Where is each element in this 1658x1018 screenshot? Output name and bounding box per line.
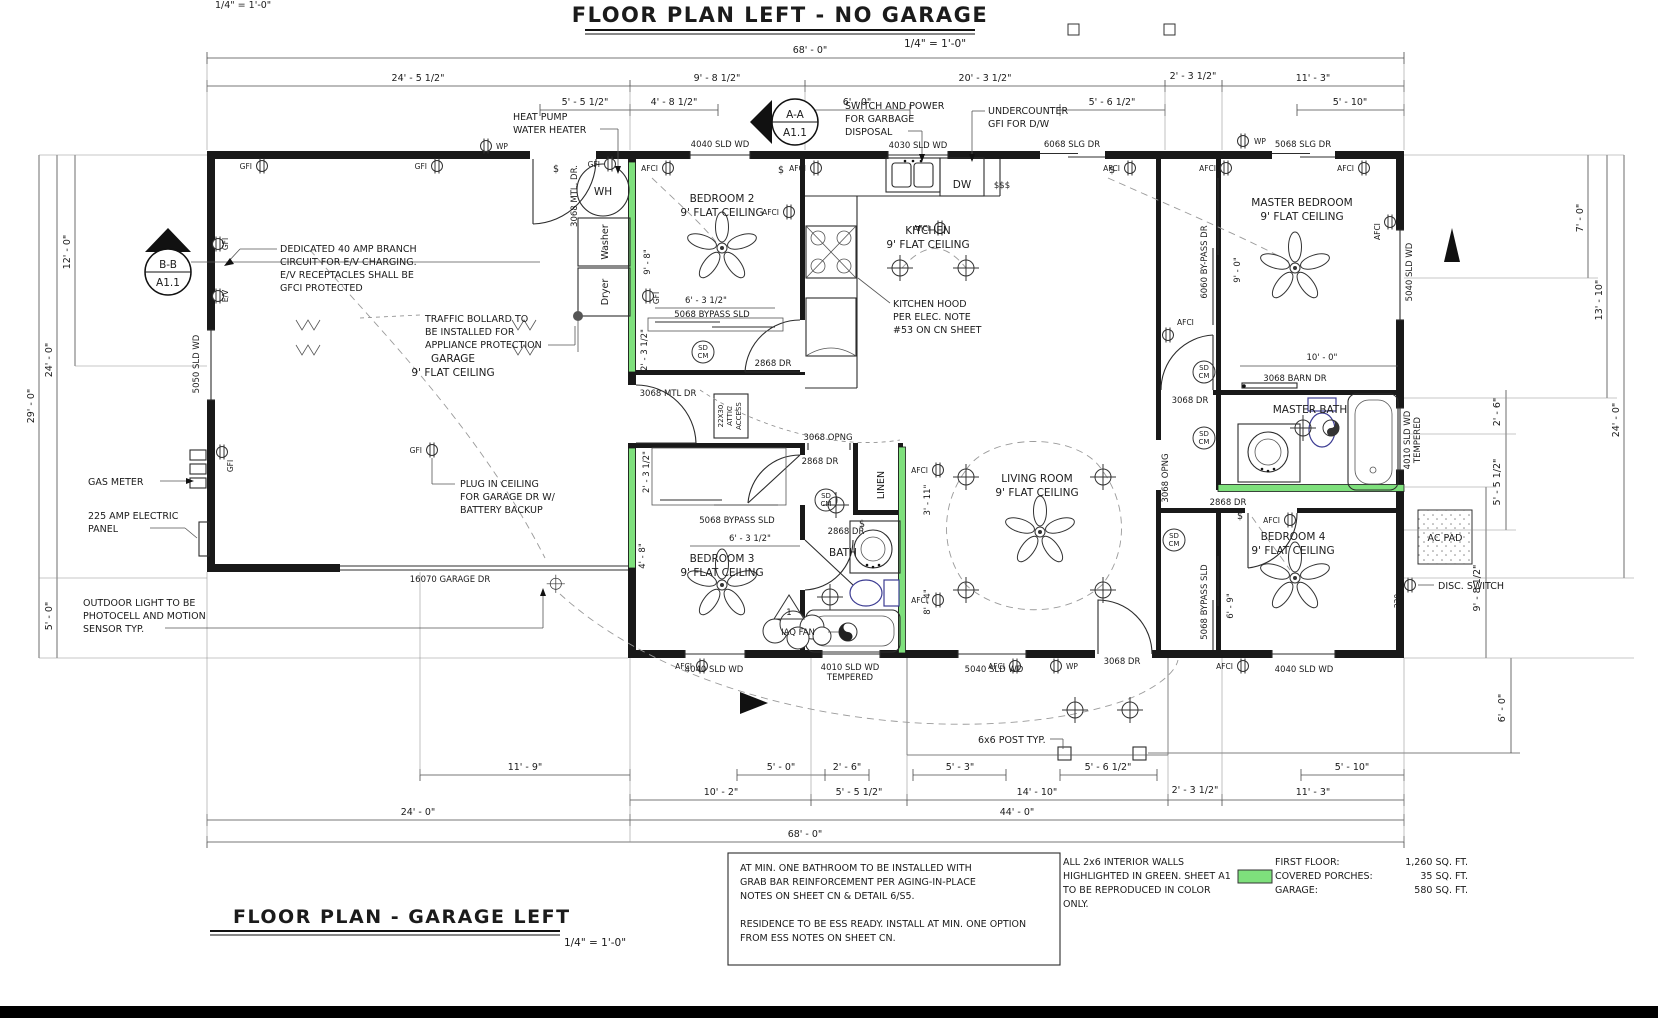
svg-text:9' FLAT CEILING: 9' FLAT CEILING bbox=[1251, 545, 1334, 557]
svg-text:DISPOSAL: DISPOSAL bbox=[845, 127, 893, 138]
svg-text:ATTIC: ATTIC bbox=[726, 406, 734, 426]
svg-text:9' - 0": 9' - 0" bbox=[1233, 257, 1243, 283]
svg-text:AFCI: AFCI bbox=[1263, 516, 1280, 525]
svg-text:#53 ON CN SHEET: #53 ON CN SHEET bbox=[893, 325, 982, 336]
svg-text:GFI: GFI bbox=[226, 460, 235, 472]
svg-text:$: $ bbox=[778, 165, 784, 176]
svg-text:5' - 0": 5' - 0" bbox=[767, 762, 796, 773]
svg-text:3068 OPNG: 3068 OPNG bbox=[803, 433, 852, 443]
svg-text:WH: WH bbox=[594, 186, 612, 198]
svg-text:10' - 0": 10' - 0" bbox=[1307, 353, 1338, 363]
svg-text:$: $ bbox=[1237, 511, 1243, 522]
svg-text:IAQ FAN: IAQ FAN bbox=[781, 628, 815, 638]
note-garbage-disposal: SWITCH AND POWER bbox=[845, 101, 945, 112]
svg-text:A1.1: A1.1 bbox=[783, 127, 807, 139]
svg-text:9' FLAT CEILING: 9' FLAT CEILING bbox=[1260, 211, 1343, 223]
svg-text:E/V RECEPTACLES SHALL BE: E/V RECEPTACLES SHALL BE bbox=[280, 270, 414, 281]
note-disc-switch: DISC. SWITCH bbox=[1438, 581, 1504, 592]
svg-text:29' - 0": 29' - 0" bbox=[26, 389, 37, 424]
svg-text:9' FLAT CEILING: 9' FLAT CEILING bbox=[680, 567, 763, 579]
top-title: FLOOR PLAN LEFT - NO GARAGE bbox=[572, 3, 989, 27]
svg-text:AFCI: AFCI bbox=[1337, 164, 1354, 173]
room-bedroom3: BEDROOM 3 bbox=[690, 553, 755, 565]
svg-text:5068 BYPASS SLD: 5068 BYPASS SLD bbox=[1200, 564, 1210, 640]
svg-text:TO BE REPRODUCED IN COLOR: TO BE REPRODUCED IN COLOR bbox=[1062, 885, 1211, 896]
room-master-bath: MASTER BATH bbox=[1273, 404, 1347, 416]
bottom-title: FLOOR PLAN - GARAGE LEFT bbox=[233, 906, 571, 928]
svg-text:RESIDENCE TO BE ESS READY. INS: RESIDENCE TO BE ESS READY. INSTALL AT MI… bbox=[740, 919, 1026, 930]
area-garage-label: GARAGE: bbox=[1275, 885, 1318, 896]
room-master-bedroom: MASTER BEDROOM bbox=[1251, 197, 1352, 209]
svg-text:24' - 0": 24' - 0" bbox=[401, 807, 436, 818]
svg-text:APPLIANCE PROTECTION: APPLIANCE PROTECTION bbox=[425, 340, 542, 351]
area-porches-label: COVERED PORCHES: bbox=[1275, 871, 1373, 882]
svg-text:5' - 3": 5' - 3" bbox=[946, 762, 975, 773]
svg-text:6' - 0": 6' - 0" bbox=[1497, 694, 1508, 723]
svg-text:1: 1 bbox=[786, 608, 791, 618]
svg-text:HIGHLIGHTED IN GREEN. SHEET A1: HIGHLIGHTED IN GREEN. SHEET A1 bbox=[1063, 871, 1231, 882]
svg-text:CM: CM bbox=[1199, 438, 1210, 446]
svg-text:11' - 3": 11' - 3" bbox=[1296, 787, 1331, 798]
svg-text:3068 MTL DR: 3068 MTL DR bbox=[640, 389, 697, 399]
svg-text:9' FLAT CEILING: 9' FLAT CEILING bbox=[886, 239, 969, 251]
svg-text:11' - 3": 11' - 3" bbox=[1296, 73, 1331, 84]
svg-text:CM: CM bbox=[1199, 372, 1210, 380]
dimension-lines bbox=[39, 52, 1634, 848]
svg-text:5' - 10": 5' - 10" bbox=[1333, 97, 1368, 108]
svg-text:22X30: 22X30 bbox=[717, 405, 725, 428]
area-first-floor-label: FIRST FLOOR: bbox=[1275, 857, 1340, 868]
svg-text:9' - 8 1/2": 9' - 8 1/2" bbox=[694, 73, 741, 84]
svg-text:5' - 0": 5' - 0" bbox=[44, 602, 55, 631]
svg-text:NOTES ON SHEET CN & DETAIL 6/S: NOTES ON SHEET CN & DETAIL 6/S5. bbox=[740, 891, 915, 902]
svg-text:5068 BYPASS SLD: 5068 BYPASS SLD bbox=[699, 516, 775, 526]
svg-text:BATTERY BACKUP: BATTERY BACKUP bbox=[460, 505, 543, 516]
svg-text:WP: WP bbox=[496, 142, 508, 151]
svg-text:3068 MTL. DR.: 3068 MTL. DR. bbox=[570, 165, 580, 227]
note-electric-panel: 225 AMP ELECTRIC bbox=[88, 511, 179, 522]
svg-text:9' FLAT CEILING: 9' FLAT CEILING bbox=[680, 207, 763, 219]
svg-text:TEMPERED: TEMPERED bbox=[826, 673, 874, 683]
svg-text:PANEL: PANEL bbox=[88, 524, 119, 535]
dim-labels-top: 68' - 0" 24' - 5 1/2" 9' - 8 1/2" 20' - … bbox=[392, 45, 1368, 108]
svg-text:4010 SLD WD: 4010 SLD WD bbox=[821, 663, 880, 673]
svg-text:TEMPERED: TEMPERED bbox=[1413, 416, 1423, 464]
top-scale: 1/4" = 1'-0" bbox=[904, 38, 966, 50]
svg-text:Washer: Washer bbox=[600, 224, 611, 259]
svg-text:2' - 3 1/2": 2' - 3 1/2" bbox=[640, 329, 650, 371]
svg-text:2868 DR: 2868 DR bbox=[755, 359, 792, 369]
svg-text:4040 SLD WD: 4040 SLD WD bbox=[1275, 665, 1334, 675]
svg-text:3068 DR: 3068 DR bbox=[1104, 657, 1141, 667]
svg-text:GFI: GFI bbox=[410, 446, 422, 455]
svg-text:5050 SLD WD: 5050 SLD WD bbox=[192, 334, 202, 393]
floor-plan-sheet: FLOOR PLAN LEFT - NO GARAGE 1/4" = 1'-0"… bbox=[0, 0, 1658, 1018]
svg-text:FROM ESS NOTES ON SHEET CN.: FROM ESS NOTES ON SHEET CN. bbox=[740, 933, 896, 944]
svg-text:3068 OPNG: 3068 OPNG bbox=[1161, 453, 1171, 502]
svg-text:5' - 6 1/2": 5' - 6 1/2" bbox=[1085, 762, 1132, 773]
svg-text:CM: CM bbox=[698, 352, 709, 360]
svg-text:$: $ bbox=[553, 164, 559, 175]
svg-text:AFCI: AFCI bbox=[789, 164, 806, 173]
sheet-edge-bar bbox=[0, 1006, 1658, 1018]
svg-text:PER ELEC. NOTE: PER ELEC. NOTE bbox=[893, 312, 971, 323]
footer-note-box: AT MIN. ONE BATHROOM TO BE INSTALLED WIT… bbox=[740, 863, 972, 874]
svg-text:6' - 9": 6' - 9" bbox=[1226, 593, 1236, 619]
room-bath: BATH bbox=[829, 547, 857, 559]
floor-plan-drawing: FLOOR PLAN LEFT - NO GARAGE 1/4" = 1'-0"… bbox=[0, 0, 1658, 1018]
svg-text:GFCI PROTECTED: GFCI PROTECTED bbox=[280, 283, 363, 294]
svg-text:ACCESS: ACCESS bbox=[735, 402, 743, 430]
svg-text:AFCI: AFCI bbox=[911, 596, 928, 605]
svg-text:PHOTOCELL AND MOTION: PHOTOCELL AND MOTION bbox=[83, 611, 206, 622]
svg-text:GFI: GFI bbox=[240, 162, 252, 171]
svg-text:SD: SD bbox=[1199, 430, 1209, 438]
footer-green-note: ALL 2x6 INTERIOR WALLS bbox=[1063, 857, 1184, 868]
svg-text:FOR GARAGE DR W/: FOR GARAGE DR W/ bbox=[460, 492, 556, 503]
svg-text:B-B: B-B bbox=[159, 259, 177, 271]
svg-text:2' - 3 1/2": 2' - 3 1/2" bbox=[1170, 71, 1217, 82]
svg-text:GFI: GFI bbox=[415, 162, 427, 171]
svg-text:$: $ bbox=[859, 519, 865, 530]
svg-text:2' - 3 1/2": 2' - 3 1/2" bbox=[642, 451, 652, 493]
svg-text:9' - 8": 9' - 8" bbox=[643, 249, 653, 275]
door-window-labels: 3068 MTL. DR. 3068 MTL DR 4040 SLD WD 40… bbox=[192, 140, 1423, 683]
svg-text:2' - 3 1/2": 2' - 3 1/2" bbox=[1172, 785, 1219, 796]
footer: AT MIN. ONE BATHROOM TO BE INSTALLED WIT… bbox=[0, 853, 1658, 1018]
svg-text:AFCI: AFCI bbox=[1199, 164, 1216, 173]
svg-text:AFCI: AFCI bbox=[762, 208, 779, 217]
note-undercounter-gfi: UNDERCOUNTER bbox=[988, 106, 1068, 117]
svg-text:2868 DR: 2868 DR bbox=[802, 457, 839, 467]
svg-text:AFCI: AFCI bbox=[641, 164, 658, 173]
note-heat-pump: HEAT PUMP bbox=[513, 112, 568, 123]
svg-text:5' - 10": 5' - 10" bbox=[1335, 762, 1370, 773]
svg-text:4030 SLD WD: 4030 SLD WD bbox=[889, 141, 948, 151]
note-garage-plug: PLUG IN CEILING bbox=[460, 479, 539, 490]
area-garage-value: 580 SQ. FT. bbox=[1414, 885, 1468, 896]
svg-text:GFI: GFI bbox=[652, 292, 661, 304]
svg-text:CIRCUIT FOR E/V CHARGING.: CIRCUIT FOR E/V CHARGING. bbox=[280, 257, 417, 268]
svg-text:SD: SD bbox=[698, 344, 708, 352]
area-porches-value: 35 SQ. FT. bbox=[1420, 871, 1468, 882]
svg-text:WP: WP bbox=[1066, 662, 1078, 671]
svg-text:GFI: GFI bbox=[221, 238, 230, 250]
svg-text:68' - 0": 68' - 0" bbox=[793, 45, 828, 56]
svg-text:E/V: E/V bbox=[221, 289, 230, 302]
svg-text:2868 DR: 2868 DR bbox=[1210, 498, 1247, 508]
svg-text:14' - 10": 14' - 10" bbox=[1017, 787, 1058, 798]
svg-text:AFCI: AFCI bbox=[913, 224, 930, 233]
svg-text:AFCI: AFCI bbox=[675, 662, 692, 671]
note-post: 6x6 POST TYP. bbox=[978, 735, 1046, 746]
area-first-floor-value: 1,260 SQ. FT. bbox=[1405, 857, 1468, 868]
note-kitchen-hood: KITCHEN HOOD bbox=[893, 299, 967, 310]
svg-text:WATER HEATER: WATER HEATER bbox=[513, 125, 587, 136]
svg-text:SD: SD bbox=[1169, 532, 1179, 540]
svg-text:11' - 9": 11' - 9" bbox=[508, 762, 543, 773]
svg-text:SD: SD bbox=[821, 492, 831, 500]
svg-text:CM: CM bbox=[821, 500, 832, 508]
svg-text:5' - 5 1/2": 5' - 5 1/2" bbox=[1492, 459, 1503, 506]
svg-text:9' FLAT CEILING: 9' FLAT CEILING bbox=[411, 367, 494, 379]
section-marker-aa: A-A A1.1 bbox=[750, 99, 818, 145]
note-outdoor-light: OUTDOOR LIGHT TO BE bbox=[83, 598, 195, 609]
svg-text:24' - 5 1/2": 24' - 5 1/2" bbox=[392, 73, 445, 84]
green-wall-swatch bbox=[1238, 870, 1272, 883]
svg-text:5040 SLD WD: 5040 SLD WD bbox=[1405, 242, 1415, 301]
svg-text:6068 SLG DR: 6068 SLG DR bbox=[1044, 140, 1100, 150]
svg-text:220: 220 bbox=[1393, 594, 1402, 609]
svg-text:68' - 0": 68' - 0" bbox=[788, 829, 823, 840]
svg-text:5' - 5 1/2": 5' - 5 1/2" bbox=[562, 97, 609, 108]
svg-text:10' - 2": 10' - 2" bbox=[704, 787, 739, 798]
svg-text:24' - 0": 24' - 0" bbox=[44, 343, 55, 378]
svg-text:5' - 6 1/2": 5' - 6 1/2" bbox=[1089, 97, 1136, 108]
svg-text:AFCI: AFCI bbox=[1177, 318, 1194, 327]
svg-text:4010 SLD WD: 4010 SLD WD bbox=[1403, 410, 1413, 469]
svg-text:AFCI: AFCI bbox=[1216, 662, 1233, 671]
svg-text:3068 BARN DR: 3068 BARN DR bbox=[1263, 374, 1326, 384]
svg-text:3' - 11": 3' - 11" bbox=[923, 484, 933, 515]
note-gas-meter: GAS METER bbox=[88, 477, 144, 488]
svg-text:4' - 8 1/2": 4' - 8 1/2" bbox=[651, 97, 698, 108]
electrical-labels: GFI GFI GFI AFCI AFCI AFCI AFCI AFCI AFC… bbox=[221, 137, 1402, 671]
svg-text:GFI: GFI bbox=[588, 160, 600, 169]
bottom-scale: 1/4" = 1'-0" bbox=[564, 937, 626, 949]
svg-text:44' - 0": 44' - 0" bbox=[1000, 807, 1035, 818]
svg-text:4' - 8": 4' - 8" bbox=[638, 543, 648, 569]
note-bollard: TRAFFIC BOLLARD TO bbox=[424, 314, 528, 325]
svg-text:9' FLAT CEILING: 9' FLAT CEILING bbox=[995, 487, 1078, 499]
svg-text:3068 DR: 3068 DR bbox=[1172, 396, 1209, 406]
svg-text:24' - 0": 24' - 0" bbox=[1611, 403, 1622, 438]
svg-text:AFCI: AFCI bbox=[911, 466, 928, 475]
svg-text:AFCI: AFCI bbox=[1373, 223, 1382, 240]
svg-text:12' - 0": 12' - 0" bbox=[62, 235, 73, 270]
svg-text:16070 GARAGE DR: 16070 GARAGE DR bbox=[410, 575, 491, 585]
svg-text:Dryer: Dryer bbox=[600, 279, 611, 306]
svg-text:6' - 3 1/2": 6' - 3 1/2" bbox=[729, 534, 771, 544]
dim-labels-bottom: 11' - 9" 5' - 0" 2' - 6" 5' - 3" 5' - 6 … bbox=[401, 762, 1370, 840]
svg-text:AFCI: AFCI bbox=[988, 662, 1005, 671]
svg-text:WP: WP bbox=[1254, 137, 1266, 146]
svg-text:GRAB BAR REINFORCEMENT PER AGI: GRAB BAR REINFORCEMENT PER AGING-IN-PLAC… bbox=[740, 877, 976, 888]
svg-text:7' - 0": 7' - 0" bbox=[1575, 204, 1586, 233]
room-garage: GARAGE bbox=[431, 353, 475, 365]
svg-text:4040 SLD WD: 4040 SLD WD bbox=[691, 140, 750, 150]
svg-text:A-A: A-A bbox=[786, 109, 805, 121]
svg-text:A1.1: A1.1 bbox=[156, 277, 180, 289]
svg-text:SD: SD bbox=[1199, 364, 1209, 372]
svg-text:6060 BY-PASS DR: 6060 BY-PASS DR bbox=[1200, 225, 1210, 298]
svg-text:5068 BYPASS SLD: 5068 BYPASS SLD bbox=[674, 310, 750, 320]
svg-text:AC PAD: AC PAD bbox=[1428, 533, 1463, 544]
svg-text:DW: DW bbox=[953, 179, 972, 191]
svg-text:5068 SLG DR: 5068 SLG DR bbox=[1275, 140, 1331, 150]
svg-text:SENSOR TYP.: SENSOR TYP. bbox=[83, 624, 144, 635]
svg-text:GFI FOR D/W: GFI FOR D/W bbox=[988, 119, 1050, 130]
svg-text:13' - 10": 13' - 10" bbox=[1594, 280, 1605, 321]
svg-text:ONLY.: ONLY. bbox=[1063, 899, 1089, 910]
svg-text:20' - 3 1/2": 20' - 3 1/2" bbox=[959, 73, 1012, 84]
svg-text:4040 SLD WD: 4040 SLD WD bbox=[685, 665, 744, 675]
svg-text:6' - 3 1/2": 6' - 3 1/2" bbox=[685, 296, 727, 306]
svg-text:2' - 6": 2' - 6" bbox=[1492, 398, 1503, 427]
svg-text:2' - 6": 2' - 6" bbox=[833, 762, 862, 773]
note-ev-charging: DEDICATED 40 AMP BRANCH bbox=[280, 244, 417, 255]
svg-text:5' - 5 1/2": 5' - 5 1/2" bbox=[836, 787, 883, 798]
svg-text:FOR GARBAGE: FOR GARBAGE bbox=[845, 114, 914, 125]
room-bedroom4: BEDROOM 4 bbox=[1261, 531, 1326, 543]
room-living: LIVING ROOM bbox=[1001, 473, 1072, 485]
corner-scale: 1/4" = 1'-0" bbox=[215, 0, 271, 11]
svg-text:$: $ bbox=[1109, 165, 1115, 176]
svg-text:CM: CM bbox=[1169, 540, 1180, 548]
svg-text:$$$: $$$ bbox=[994, 181, 1010, 191]
svg-text:BE INSTALLED FOR: BE INSTALLED FOR bbox=[425, 327, 515, 338]
room-bedroom2: BEDROOM 2 bbox=[690, 193, 755, 205]
room-linen: LINEN bbox=[876, 471, 887, 499]
